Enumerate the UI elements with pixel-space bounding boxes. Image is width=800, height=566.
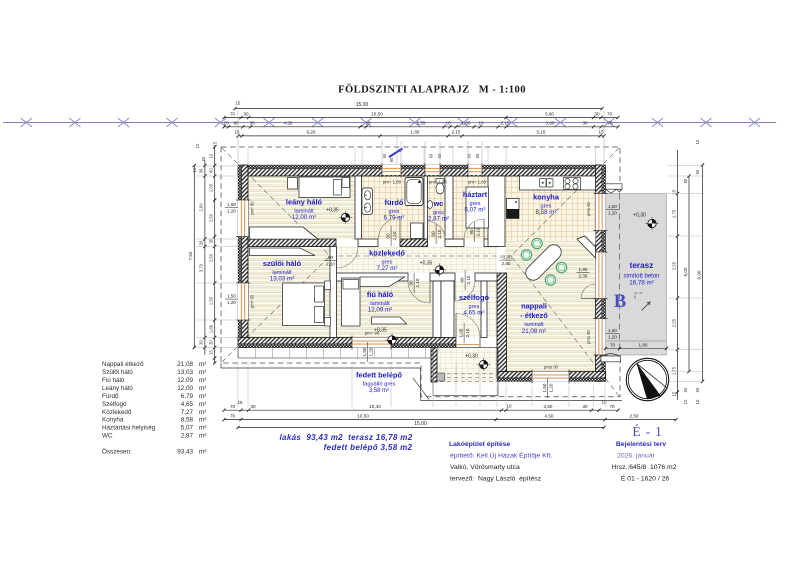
svg-text:10: 10 [195, 143, 200, 148]
svg-text:Hrsz.:645/8 1076 m2: Hrsz.:645/8 1076 m2 [612, 464, 677, 471]
svg-text:Háztartási helyiség: Háztartási helyiség [102, 425, 156, 432]
svg-text:30: 30 [683, 178, 688, 183]
svg-text:leány háló: leány háló [286, 198, 323, 207]
svg-text:90: 90 [328, 255, 334, 260]
svg-text:1,20: 1,20 [368, 347, 373, 356]
svg-text:2,15: 2,15 [501, 121, 510, 126]
svg-text:30: 30 [199, 240, 204, 245]
svg-text:30: 30 [243, 111, 249, 116]
svg-text:13,03: 13,03 [177, 369, 193, 376]
svg-text:21,08: 21,08 [177, 361, 193, 368]
svg-text:2,50: 2,50 [630, 413, 639, 418]
svg-text:10: 10 [223, 121, 229, 126]
svg-text:m²: m² [199, 385, 206, 392]
svg-text:2,30: 2,30 [579, 274, 588, 279]
svg-text:15: 15 [598, 130, 604, 135]
svg-text:2,87 m²: 2,87 m² [428, 216, 449, 223]
svg-text:m²: m² [199, 417, 206, 424]
svg-text:70: 70 [609, 404, 615, 409]
svg-text:15: 15 [234, 130, 240, 135]
svg-text:5,15: 5,15 [537, 130, 546, 135]
svg-text:fagyálló gres: fagyálló gres [363, 382, 396, 388]
svg-text:1,75: 1,75 [671, 209, 676, 218]
svg-text:fedett belépő 3,58 m2: fedett belépő 3,58 m2 [324, 443, 413, 452]
svg-text:+0,30: +0,30 [633, 213, 646, 219]
svg-text:10: 10 [695, 399, 700, 404]
svg-text:10: 10 [209, 153, 214, 158]
svg-text:1,50: 1,50 [227, 294, 236, 299]
svg-text:Valkó, Vörösmarty utca: Valkó, Vörösmarty utca [450, 464, 520, 471]
svg-text:2,10: 2,10 [437, 229, 442, 238]
svg-text:12,00: 12,00 [177, 385, 193, 392]
svg-text:93,43: 93,43 [177, 449, 193, 456]
svg-text:70: 70 [230, 404, 236, 409]
svg-text:pm* 90: pm* 90 [250, 201, 255, 215]
svg-text:7,27: 7,27 [181, 409, 194, 416]
svg-text:12,00 m²: 12,00 m² [292, 214, 316, 221]
svg-text:2,10: 2,10 [465, 328, 470, 337]
svg-text:tervező: Nagy László építész: tervező: Nagy László építész [450, 476, 542, 483]
svg-text:90: 90 [431, 231, 436, 237]
svg-text:2,10: 2,10 [326, 262, 335, 267]
svg-text:70: 70 [230, 413, 236, 418]
svg-text:pm* 90: pm* 90 [250, 294, 255, 308]
svg-text:60: 60 [695, 169, 700, 174]
svg-text:60: 60 [437, 153, 442, 158]
svg-text:70: 70 [610, 342, 616, 347]
svg-text:Összesen:: Összesen: [102, 448, 132, 456]
svg-text:1,50: 1,50 [542, 383, 547, 392]
svg-text:m²: m² [199, 369, 206, 376]
svg-text:90: 90 [389, 157, 394, 162]
svg-text:30: 30 [250, 404, 256, 409]
svg-text:2,10: 2,10 [392, 231, 397, 240]
svg-text:15: 15 [237, 400, 243, 405]
svg-text:2,55: 2,55 [671, 261, 676, 270]
svg-text:10: 10 [695, 139, 700, 144]
svg-text:30: 30 [199, 168, 204, 173]
svg-text:6,79 m²: 6,79 m² [384, 215, 405, 222]
svg-text:30: 30 [594, 111, 600, 116]
svg-text:B: B [614, 292, 626, 312]
svg-text:3,60: 3,60 [545, 111, 554, 116]
svg-text:–1,00: –1,00 [500, 255, 512, 260]
svg-text:Fiú háló: Fiú háló [102, 377, 125, 384]
svg-text:60: 60 [695, 387, 700, 392]
svg-text:90: 90 [469, 229, 474, 235]
svg-text:Közlekedő: Közlekedő [102, 409, 132, 416]
svg-text:2,55: 2,55 [671, 318, 676, 327]
svg-text:+0,35: +0,35 [420, 261, 433, 267]
svg-text:m²: m² [199, 401, 206, 408]
svg-text:10: 10 [478, 121, 484, 126]
svg-text:3,60: 3,60 [544, 404, 553, 409]
svg-text:10,40: 10,40 [369, 404, 381, 409]
svg-text:Lakóépület építése: Lakóépület építése [449, 441, 510, 448]
svg-text:építtető: Kell Új Házak Építőj: építtető: Kell Új Házak Építője Kft. [450, 451, 552, 460]
svg-text:1,00: 1,00 [462, 121, 471, 126]
svg-text:6,79: 6,79 [181, 393, 194, 400]
svg-text:1,65: 1,65 [209, 183, 214, 192]
svg-text:10: 10 [445, 121, 451, 126]
svg-text:Konyha: Konyha [102, 417, 124, 424]
svg-text:1,20: 1,20 [548, 383, 553, 392]
svg-text:60: 60 [467, 153, 472, 158]
svg-text:+0,30: +0,30 [465, 354, 478, 360]
svg-text:4,65: 4,65 [181, 401, 194, 408]
svg-text:2,10: 2,10 [415, 278, 420, 287]
svg-text:15: 15 [213, 141, 218, 146]
svg-text:2,10: 2,10 [475, 227, 480, 236]
svg-text:4,50: 4,50 [284, 121, 293, 126]
svg-text:1,20: 1,20 [608, 335, 617, 340]
svg-text:15,00: 15,00 [414, 421, 427, 427]
svg-text:12,09: 12,09 [177, 377, 193, 384]
svg-text:30: 30 [249, 121, 255, 126]
svg-text:90: 90 [386, 233, 391, 239]
svg-text:Szülői háló: Szülői háló [102, 369, 133, 376]
svg-text:m²: m² [199, 425, 206, 432]
svg-text:közlekedő: közlekedő [369, 249, 405, 258]
svg-text:8,00: 8,00 [683, 267, 688, 276]
svg-text:1,50: 1,50 [362, 347, 367, 356]
svg-text:10,50: 10,50 [357, 413, 369, 418]
svg-text:21,08 m²: 21,08 m² [522, 328, 546, 335]
svg-text:1,86: 1,86 [209, 324, 214, 333]
svg-text:Fürdő: Fürdő [102, 393, 119, 400]
svg-text:30: 30 [199, 340, 204, 345]
svg-text:15: 15 [601, 400, 607, 405]
svg-text:FÖLDSZINTI ALAPRAJZ M - 1:10: FÖLDSZINTI ALAPRAJZ M - 1:100 [338, 83, 526, 96]
svg-text:1,50: 1,50 [608, 204, 617, 209]
svg-text:1,20: 1,20 [227, 209, 236, 214]
svg-text:2,10: 2,10 [466, 275, 471, 284]
svg-text:2,55: 2,55 [417, 121, 426, 126]
svg-text:- étkező: - étkező [520, 311, 548, 320]
svg-text:É 01 - 1620 / 26: É 01 - 1620 / 26 [621, 474, 670, 483]
svg-text:Nappali étkező: Nappali étkező [102, 361, 144, 368]
svg-text:1,85: 1,85 [411, 130, 420, 135]
svg-text:háztart: háztart [463, 190, 488, 199]
svg-text:30: 30 [582, 121, 588, 126]
svg-text:7,27 m²: 7,27 m² [377, 265, 398, 272]
svg-text:60: 60 [429, 153, 434, 158]
svg-text:m²: m² [199, 433, 206, 440]
svg-text:m²: m² [199, 377, 206, 384]
svg-text:60: 60 [209, 168, 214, 173]
svg-text:90: 90 [460, 277, 465, 283]
svg-text:szülői háló: szülői háló [263, 259, 302, 268]
svg-text:60: 60 [683, 387, 688, 392]
svg-text:10: 10 [506, 404, 512, 409]
svg-text:fürdő: fürdő [385, 198, 404, 207]
svg-text:2026. január: 2026. január [617, 453, 656, 460]
svg-text:12,09 m²: 12,09 m² [368, 307, 392, 314]
svg-text:15: 15 [209, 350, 214, 355]
svg-text:m²: m² [199, 449, 206, 456]
svg-text:1,50: 1,50 [227, 202, 236, 207]
svg-text:pm= 1,80: pm= 1,80 [383, 180, 402, 185]
svg-text:1,50: 1,50 [608, 328, 617, 333]
svg-text:pm= 1,80: pm= 1,80 [429, 180, 448, 185]
svg-text:WC: WC [102, 433, 113, 440]
svg-text:1,80: 1,80 [579, 267, 588, 272]
svg-text:1,50: 1,50 [209, 296, 214, 305]
svg-text:10,50: 10,50 [371, 111, 383, 116]
svg-text:m²: m² [199, 409, 206, 416]
svg-text:szélfogó: szélfogó [459, 293, 489, 302]
svg-text:fiú háló: fiú háló [367, 290, 394, 299]
svg-text:1,50: 1,50 [209, 253, 214, 262]
svg-text:wc: wc [433, 199, 444, 208]
svg-text:1,80: 1,80 [639, 342, 648, 347]
svg-text:4,65 m²: 4,65 m² [464, 310, 485, 317]
svg-text:3,60: 3,60 [546, 121, 555, 126]
svg-text:60: 60 [382, 153, 387, 158]
svg-text:pm= 1,80: pm= 1,80 [468, 180, 487, 185]
svg-text:Szélfogó: Szélfogó [102, 401, 127, 408]
svg-text:7,50: 7,50 [188, 251, 193, 260]
svg-text:1,20: 1,20 [227, 300, 236, 305]
svg-text:+0,35: +0,35 [326, 208, 339, 214]
svg-text:15,00: 15,00 [356, 102, 369, 108]
svg-text:3,58 m²: 3,58 m² [369, 388, 389, 394]
svg-text:10: 10 [683, 399, 688, 404]
svg-text:m²: m² [199, 393, 206, 400]
svg-text:13,03 m²: 13,03 m² [270, 276, 294, 283]
svg-text:90: 90 [409, 280, 414, 286]
svg-text:2,87: 2,87 [181, 433, 194, 440]
svg-text:Leány háló: Leány háló [102, 385, 133, 392]
svg-text:2,60: 2,60 [199, 203, 204, 212]
svg-text:60: 60 [475, 153, 480, 158]
svg-text:pms 90: pms 90 [544, 365, 559, 370]
svg-text:70: 70 [607, 121, 613, 126]
svg-text:Bejelentési terv: Bejelentési terv [616, 441, 666, 448]
svg-text:pm= 90: pm= 90 [365, 331, 380, 336]
svg-text:15: 15 [671, 391, 676, 396]
svg-text:pms 90: pms 90 [586, 329, 591, 343]
svg-text:8,90: 8,90 [696, 270, 701, 279]
svg-text:5,07 m²: 5,07 m² [465, 207, 486, 214]
svg-text:1,75: 1,75 [671, 366, 676, 375]
svg-text:1,20: 1,20 [608, 211, 617, 216]
svg-text:5,07: 5,07 [181, 425, 194, 432]
svg-text:15: 15 [236, 101, 241, 106]
svg-text:1,00: 1,00 [459, 328, 464, 337]
svg-text:30: 30 [209, 340, 214, 345]
svg-text:2,15: 2,15 [452, 130, 461, 135]
svg-text:2,40: 2,40 [502, 261, 511, 266]
svg-text:1,50: 1,50 [209, 213, 214, 222]
svg-text:terasz: terasz [630, 261, 654, 270]
svg-text:nappali: nappali [521, 302, 547, 311]
svg-text:15: 15 [192, 167, 197, 172]
svg-text:16,78 m²: 16,78 m² [629, 280, 653, 287]
svg-text:10: 10 [365, 121, 371, 126]
svg-text:fedett belépő: fedett belépő [356, 371, 402, 380]
svg-text:8,58: 8,58 [181, 417, 194, 424]
svg-text:3,70: 3,70 [199, 263, 204, 272]
svg-text:É - 1: É - 1 [632, 424, 662, 439]
svg-text:6,20: 6,20 [307, 130, 316, 135]
svg-text:70: 70 [607, 111, 613, 116]
svg-text:60: 60 [201, 156, 206, 161]
svg-text:lakás 93,43 m2 terasz 16,78: lakás 93,43 m2 terasz 16,78 m2 [279, 433, 412, 442]
svg-text:4,50: 4,50 [545, 413, 554, 418]
svg-text:m²: m² [199, 361, 206, 368]
svg-text:70: 70 [230, 111, 236, 116]
svg-text:8,58 m²: 8,58 m² [536, 209, 557, 216]
svg-text:30: 30 [582, 404, 588, 409]
svg-text:konyha: konyha [533, 193, 560, 202]
svg-text:pms 90: pms 90 [586, 201, 591, 215]
